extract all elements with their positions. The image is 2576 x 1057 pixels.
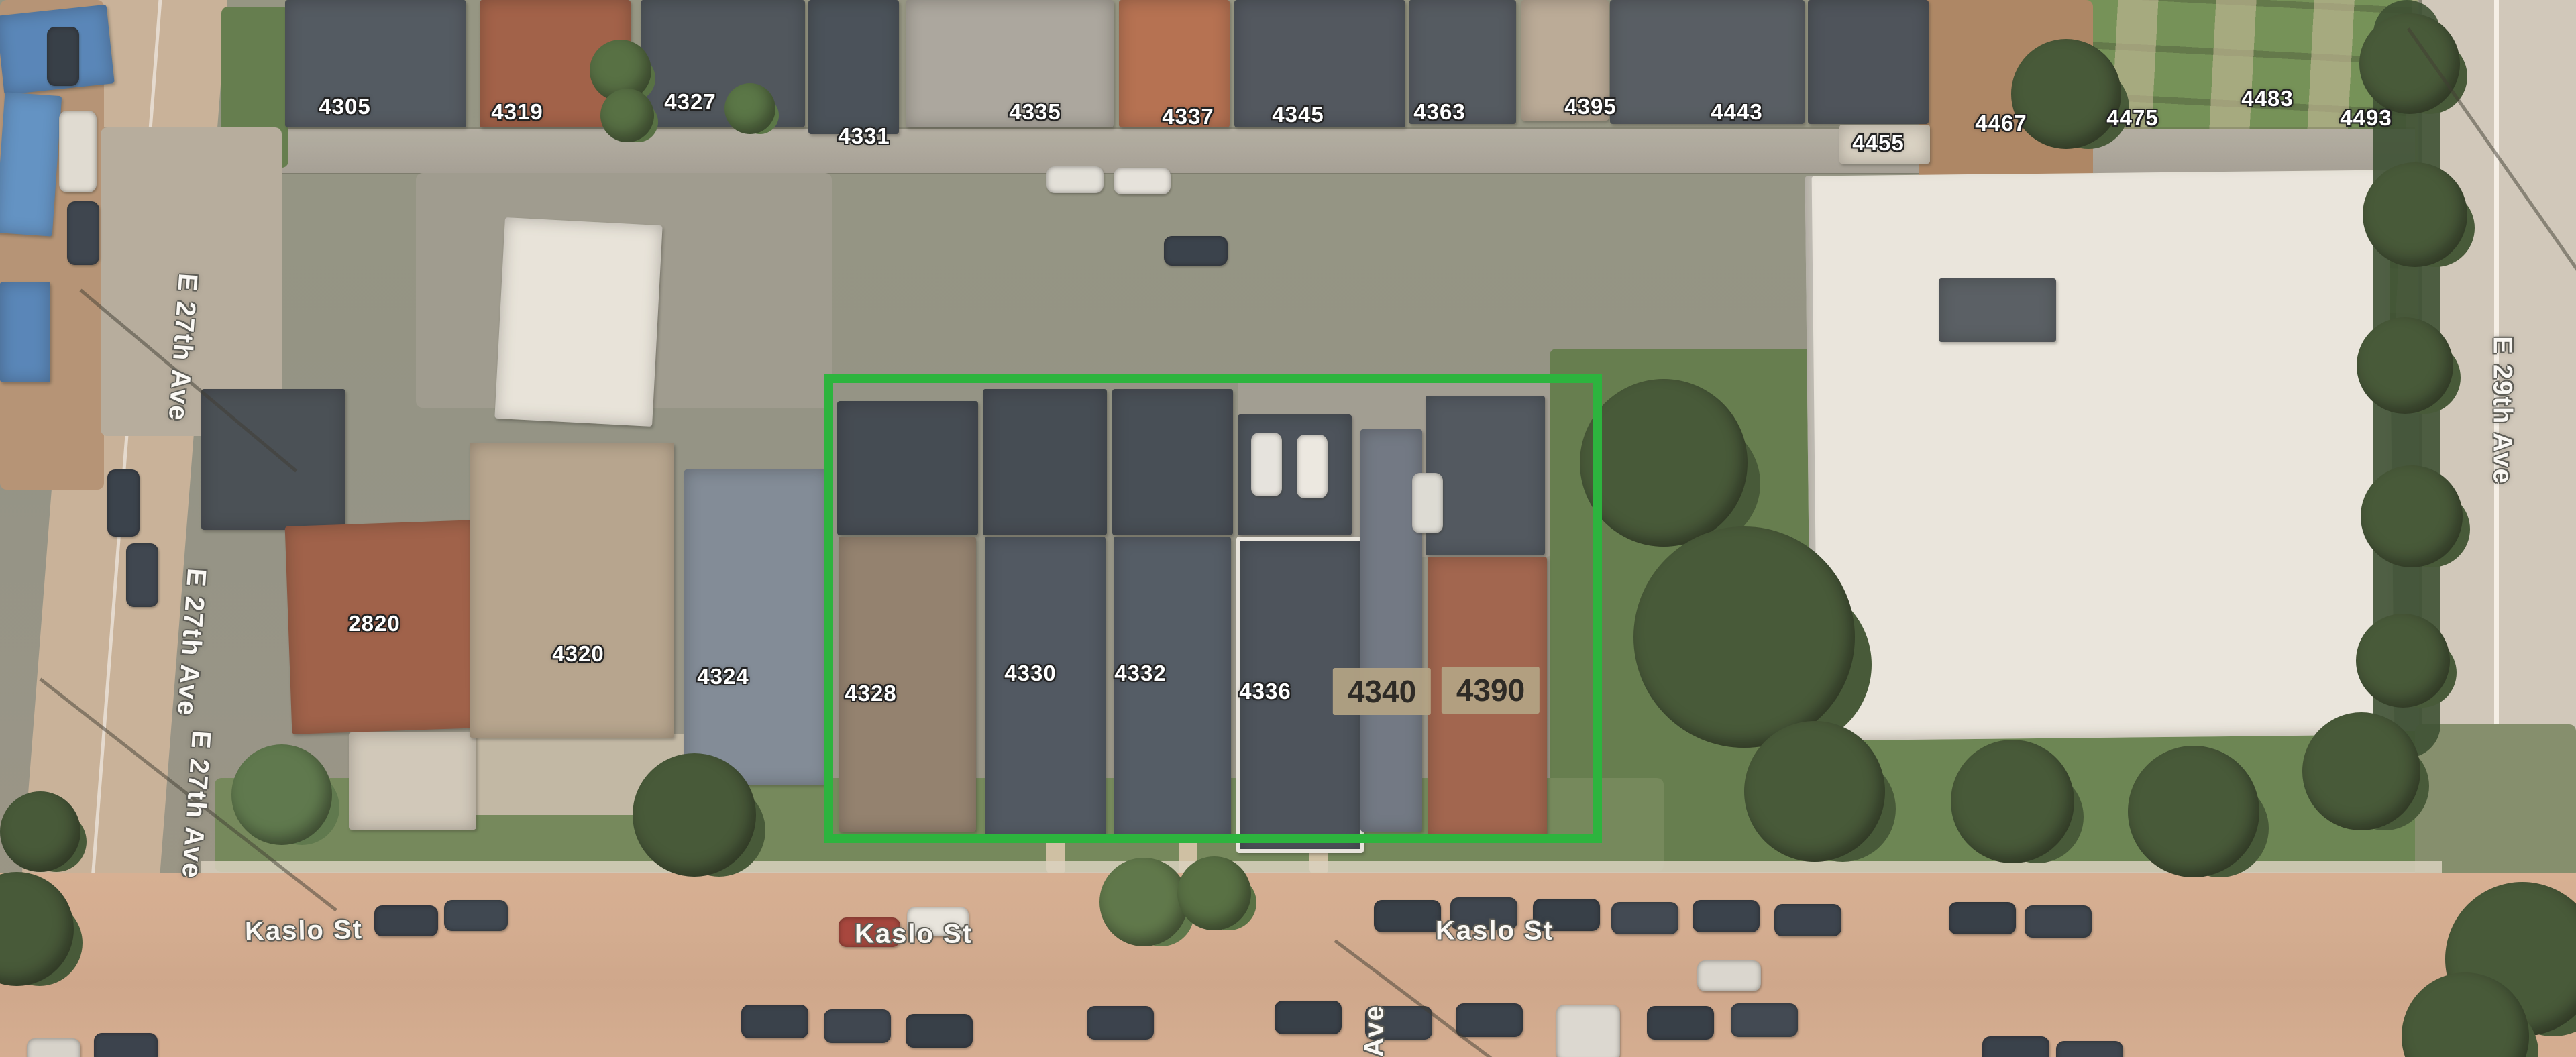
address-label: 2820 [348,611,400,636]
parcel-label: 4340 [1333,668,1431,715]
car [27,1038,80,1057]
car [59,111,97,192]
house-roof [349,732,476,830]
satellite-map[interactable]: 4305431943274331433543374345436343954443… [0,0,2576,1057]
car [1693,900,1760,932]
street-label: E 29th Ave [2487,336,2518,485]
house-roof [470,443,674,738]
car [67,201,99,265]
house-roof [1808,0,1929,124]
ground-patch [2415,724,2576,879]
address-label: 4483 [2241,86,2293,111]
tree [0,791,80,872]
car [374,905,438,936]
address-label: 4328 [845,681,896,706]
car [1774,904,1841,936]
car [1697,960,1761,991]
address-label: 4331 [838,123,890,149]
car [126,543,158,607]
house-roof [808,0,899,134]
car [1456,1003,1523,1037]
tree [633,753,756,877]
address-label: 4363 [1413,99,1465,125]
tree [2363,162,2467,267]
tree [1633,526,1855,748]
tree [724,83,775,134]
car [2056,1041,2123,1057]
tree [2357,317,2453,414]
car [1647,1006,1714,1040]
car [1982,1036,2049,1057]
car [824,1009,891,1043]
house-roof [1939,278,2056,342]
address-label: 4305 [319,94,370,119]
car [1046,166,1104,193]
car [1275,1001,1342,1034]
car [1114,168,1171,194]
tree [231,744,332,845]
address-label: 4475 [2106,105,2158,131]
address-label: 4455 [1852,130,1904,156]
parcel-label: 4390 [1442,667,1540,714]
car [47,27,79,86]
address-label: 4324 [697,664,749,689]
tree [2361,465,2463,567]
highlight-rectangle [824,374,1602,843]
car [1087,1006,1154,1040]
address-label: 4467 [1975,111,2027,136]
street-label: Ave [1360,1005,1390,1057]
tree [600,89,654,142]
street-label: Kaslo St [245,915,364,947]
car [1556,1005,1620,1057]
address-label: 4395 [1564,94,1616,119]
address-label: 4335 [1009,99,1061,125]
tree [1744,721,1885,862]
car [94,1033,158,1057]
tree [1951,740,2074,863]
house-roof [0,282,50,382]
car [444,900,508,931]
house-roof [494,217,662,427]
tree [2356,614,2450,708]
car [906,1014,973,1048]
car [1949,902,2016,934]
tree [1580,379,1748,547]
address-label: 4327 [664,89,716,115]
car [1731,1003,1798,1037]
car [2025,905,2092,938]
tree [2011,39,2121,149]
car [1374,900,1441,932]
address-label: 4319 [491,99,543,125]
address-label: 4493 [2340,105,2392,131]
street-label: Kaslo St [1436,916,1554,946]
address-label: 4345 [1272,102,1324,127]
car [107,469,140,537]
address-label: 4336 [1239,679,1291,704]
tree [2128,746,2259,877]
address-label: 4443 [1711,99,1762,125]
house-roof [0,92,62,236]
address-label: 4330 [1004,661,1056,686]
house-roof [684,469,828,785]
tree [2302,712,2420,830]
address-label: 4337 [1162,104,1214,129]
address-label: 4332 [1114,661,1166,686]
car [1164,236,1228,266]
tree [1099,858,1188,946]
house-roof [1610,0,1805,124]
house-roof [285,0,466,127]
street-label: Kaslo St [855,920,973,950]
address-label: 4320 [552,641,604,667]
car [741,1005,808,1038]
car [1611,902,1678,934]
warehouse-roof [1805,170,2395,740]
tree [1177,856,1251,930]
